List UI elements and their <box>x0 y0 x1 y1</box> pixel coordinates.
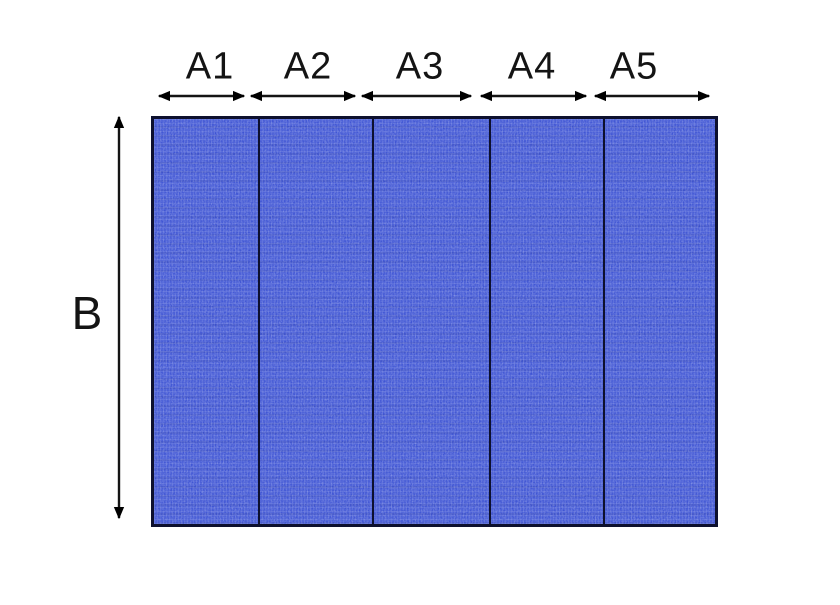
panel-divider-4 <box>603 118 605 525</box>
panel-divider-3 <box>489 118 491 525</box>
dim-label-a3: A3 <box>396 46 444 89</box>
dim-label-a1: A1 <box>186 46 234 89</box>
blue-panel <box>151 116 718 527</box>
dim-label-a4: A4 <box>508 46 556 89</box>
dim-label-a2: A2 <box>284 46 332 89</box>
dim-label-b: B <box>72 286 103 340</box>
panel-divider-2 <box>372 118 374 525</box>
panel-divider-1 <box>258 118 260 525</box>
weave-overlay <box>154 119 715 524</box>
dim-label-a5: A5 <box>610 46 658 89</box>
diagram-canvas: A1 A2 A3 A4 A5 B <box>0 0 840 605</box>
